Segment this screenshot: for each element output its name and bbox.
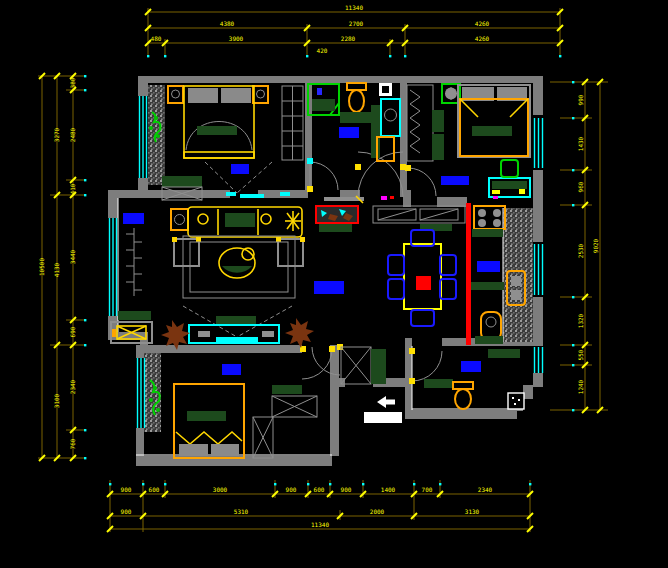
shower-bench <box>312 99 335 111</box>
marker-dot <box>381 196 387 200</box>
wall-segment <box>403 190 411 207</box>
wall-segment <box>405 410 517 419</box>
tv-cabinet <box>189 325 279 343</box>
vent-window-pane <box>382 86 389 93</box>
nightstand <box>253 86 268 103</box>
sofa <box>188 207 302 237</box>
room-label-block <box>461 361 481 372</box>
storage-box <box>272 385 302 394</box>
dim-label: 2280 <box>341 35 356 42</box>
dim-label: 380 <box>69 77 76 88</box>
dim-label: 2000 <box>370 508 385 515</box>
dim-label: 2340 <box>478 486 493 493</box>
wall-step <box>533 373 543 387</box>
tall-cabinet <box>371 105 380 158</box>
dim-label: 700 <box>422 486 433 493</box>
room-living <box>111 207 314 350</box>
counter-shelf <box>472 229 503 237</box>
dim-label: 550 <box>577 349 584 360</box>
wall-segment <box>136 428 144 458</box>
vanity-counter <box>424 379 453 388</box>
dim-label: 960 <box>577 181 584 192</box>
aquarium-cabinet <box>316 206 358 223</box>
wall-segment <box>330 345 339 456</box>
room-label-block <box>441 176 469 185</box>
dim-label: 3440 <box>69 249 76 264</box>
wardrobe-upper <box>272 396 317 417</box>
wall-segment <box>136 345 302 353</box>
counter-shelf <box>471 282 504 290</box>
dim-label: 11340 <box>311 521 329 528</box>
fan-ornament-icon <box>285 211 301 231</box>
dim-label: 900 <box>341 486 352 493</box>
dim-label: 2530 <box>577 243 584 258</box>
pillow <box>179 444 208 456</box>
shoe-cabinet <box>341 347 371 384</box>
marker-dot <box>493 196 498 199</box>
side-table <box>171 209 188 230</box>
room-label-block <box>222 364 241 375</box>
dim-label: 990 <box>577 94 584 105</box>
dim-label: 2480 <box>69 127 76 142</box>
pillow <box>188 88 218 103</box>
room-bathroom-bottom <box>424 349 524 409</box>
storage-box <box>432 134 444 160</box>
cad-floor-plan-canvas: 11340 4380 2700 4260 480 3900 2280 420 4… <box>0 0 668 568</box>
hall-shelf <box>319 224 352 232</box>
wardrobe <box>282 86 303 160</box>
room-label-block <box>314 281 344 294</box>
dimension-chain-top: 11340 4380 2700 4260 480 3900 2280 420 4… <box>145 4 563 57</box>
wall-segment <box>108 198 118 218</box>
room-label-block <box>339 127 359 138</box>
dim-label: 900 <box>121 508 132 515</box>
shower-head-icon <box>317 88 322 95</box>
dim-label: 5310 <box>234 508 249 515</box>
water-heater <box>481 312 501 340</box>
door-hinge <box>307 186 313 192</box>
dim-label: 3000 <box>213 486 228 493</box>
bed-runner <box>187 411 226 421</box>
dim-label: 11340 <box>345 4 363 11</box>
room-bedroom-bottom-left <box>149 364 317 458</box>
wall-segment <box>138 76 408 83</box>
bed-runner <box>197 126 237 135</box>
nightstand <box>168 86 183 103</box>
door-arc-bathroom-bottom <box>412 351 442 381</box>
dim-label: 600 <box>314 486 325 493</box>
dimension-node-dots <box>147 55 561 57</box>
wall-segment <box>108 190 148 198</box>
window-bedroom-top-left <box>140 96 147 178</box>
door-hinge <box>409 348 415 354</box>
washbasin <box>381 99 400 136</box>
tv-screen <box>216 337 258 343</box>
door-arc-corridor-a <box>358 152 403 197</box>
radiator-icon <box>126 228 142 296</box>
room-label-block <box>123 213 144 224</box>
door-arc-bathroom-top <box>310 162 338 190</box>
armchair-right <box>276 237 305 266</box>
dim-label: 900 <box>286 486 297 493</box>
dim-label: 10500 <box>38 258 45 276</box>
dim-label: 480 <box>151 35 162 42</box>
entry-arrow-icon <box>377 396 395 408</box>
room-bedroom-top-right <box>407 84 530 199</box>
dim-label: 3130 <box>465 508 480 515</box>
plant-icon <box>285 318 314 348</box>
table-runner <box>416 276 431 290</box>
toilet-icon <box>453 382 473 409</box>
dimension-chain-bottom: 900 600 3000 900 600 900 1400 700 2340 9… <box>107 480 533 532</box>
pillow <box>211 444 239 456</box>
marker-dot <box>390 196 394 199</box>
dim-label: 3100 <box>53 393 60 408</box>
dimension-chain-right: 990 1430 960 2530 1320 550 1240 9020 <box>550 79 608 413</box>
door-hinge <box>355 164 361 170</box>
counter-shelf <box>475 336 503 344</box>
dim-label: 1430 <box>577 136 584 151</box>
door-arc-corridor-b <box>358 152 403 197</box>
stove <box>474 206 505 229</box>
room-bathroom-top <box>308 83 400 161</box>
wardrobe-lower <box>253 417 273 458</box>
dim-label: 2340 <box>69 379 76 394</box>
wall-segment <box>533 170 543 242</box>
dim-label: 420 <box>317 47 328 54</box>
dim-label: 2700 <box>349 20 364 27</box>
tv-shelf <box>216 316 256 325</box>
entry-name-plate <box>364 412 402 423</box>
duvet-fold <box>186 122 252 151</box>
floor-drain <box>508 393 524 409</box>
room-dining <box>373 206 465 326</box>
desk-chair <box>501 160 518 177</box>
wall-segment <box>533 83 543 115</box>
pillow <box>221 88 251 103</box>
room-label-block <box>231 164 249 174</box>
dim-label: 600 <box>149 486 160 493</box>
window-kitchen <box>535 244 543 295</box>
dim-label: 1320 <box>577 313 584 328</box>
dim-label: 4130 <box>53 262 60 277</box>
dresser-top <box>162 176 202 187</box>
double-bed <box>174 384 244 458</box>
balcony-planter <box>118 311 151 320</box>
door-hinge <box>307 158 313 164</box>
door-hinge <box>405 165 411 171</box>
vanity-counter <box>488 349 520 358</box>
dim-label: 1240 <box>577 379 584 394</box>
dim-label: 410 <box>69 183 76 194</box>
highlighted-new-wall <box>466 203 471 345</box>
door-arc-bedroom-bottom-left <box>302 349 332 379</box>
dim-label: 1400 <box>381 486 396 493</box>
coffee-table <box>219 248 255 278</box>
bed-runner <box>472 126 512 136</box>
window-bedroom-top-right <box>535 118 543 168</box>
dimension-node-dots <box>572 81 574 411</box>
desk <box>489 178 530 197</box>
floor-plan-drawing: 11340 4380 2700 4260 480 3900 2280 420 4… <box>0 0 668 568</box>
window-bathroom-bottom <box>535 347 543 373</box>
dim-label: 760 <box>69 438 76 449</box>
dimension-node-dots <box>84 75 86 459</box>
wall-segment <box>138 83 148 96</box>
door-arc-bedroom-top-right <box>408 168 436 196</box>
room-hallway <box>314 196 394 294</box>
door-hinge <box>409 378 415 384</box>
wardrobe <box>407 85 433 161</box>
lamp-icon <box>257 90 265 98</box>
wall-segment <box>405 76 543 83</box>
lamp-icon <box>172 90 180 98</box>
window-bedroom-bottom-left <box>138 358 145 428</box>
sideboard <box>373 206 465 223</box>
entry-bench <box>371 349 386 384</box>
dim-label: 690 <box>69 326 76 337</box>
dim-label: 4260 <box>475 35 490 42</box>
dim-label: 4380 <box>220 20 235 27</box>
dim-label: 9020 <box>592 238 599 253</box>
room-label-block <box>477 261 500 272</box>
door-hinge <box>329 346 335 352</box>
armchair-left <box>172 237 201 266</box>
dim-label: 3900 <box>229 35 244 42</box>
storage-box <box>432 110 444 132</box>
dimension-chain-left: 10500 3270 4130 3100 380 2480 410 3440 6… <box>38 73 86 461</box>
dim-label: 4260 <box>475 20 490 27</box>
dim-label: 900 <box>121 486 132 493</box>
window-living-bay <box>110 218 117 316</box>
wall-segment <box>533 297 543 345</box>
wall-segment <box>400 83 407 197</box>
toilet-icon <box>347 83 366 112</box>
bed-foot-rail <box>184 152 254 158</box>
dim-label: 3270 <box>53 127 60 142</box>
